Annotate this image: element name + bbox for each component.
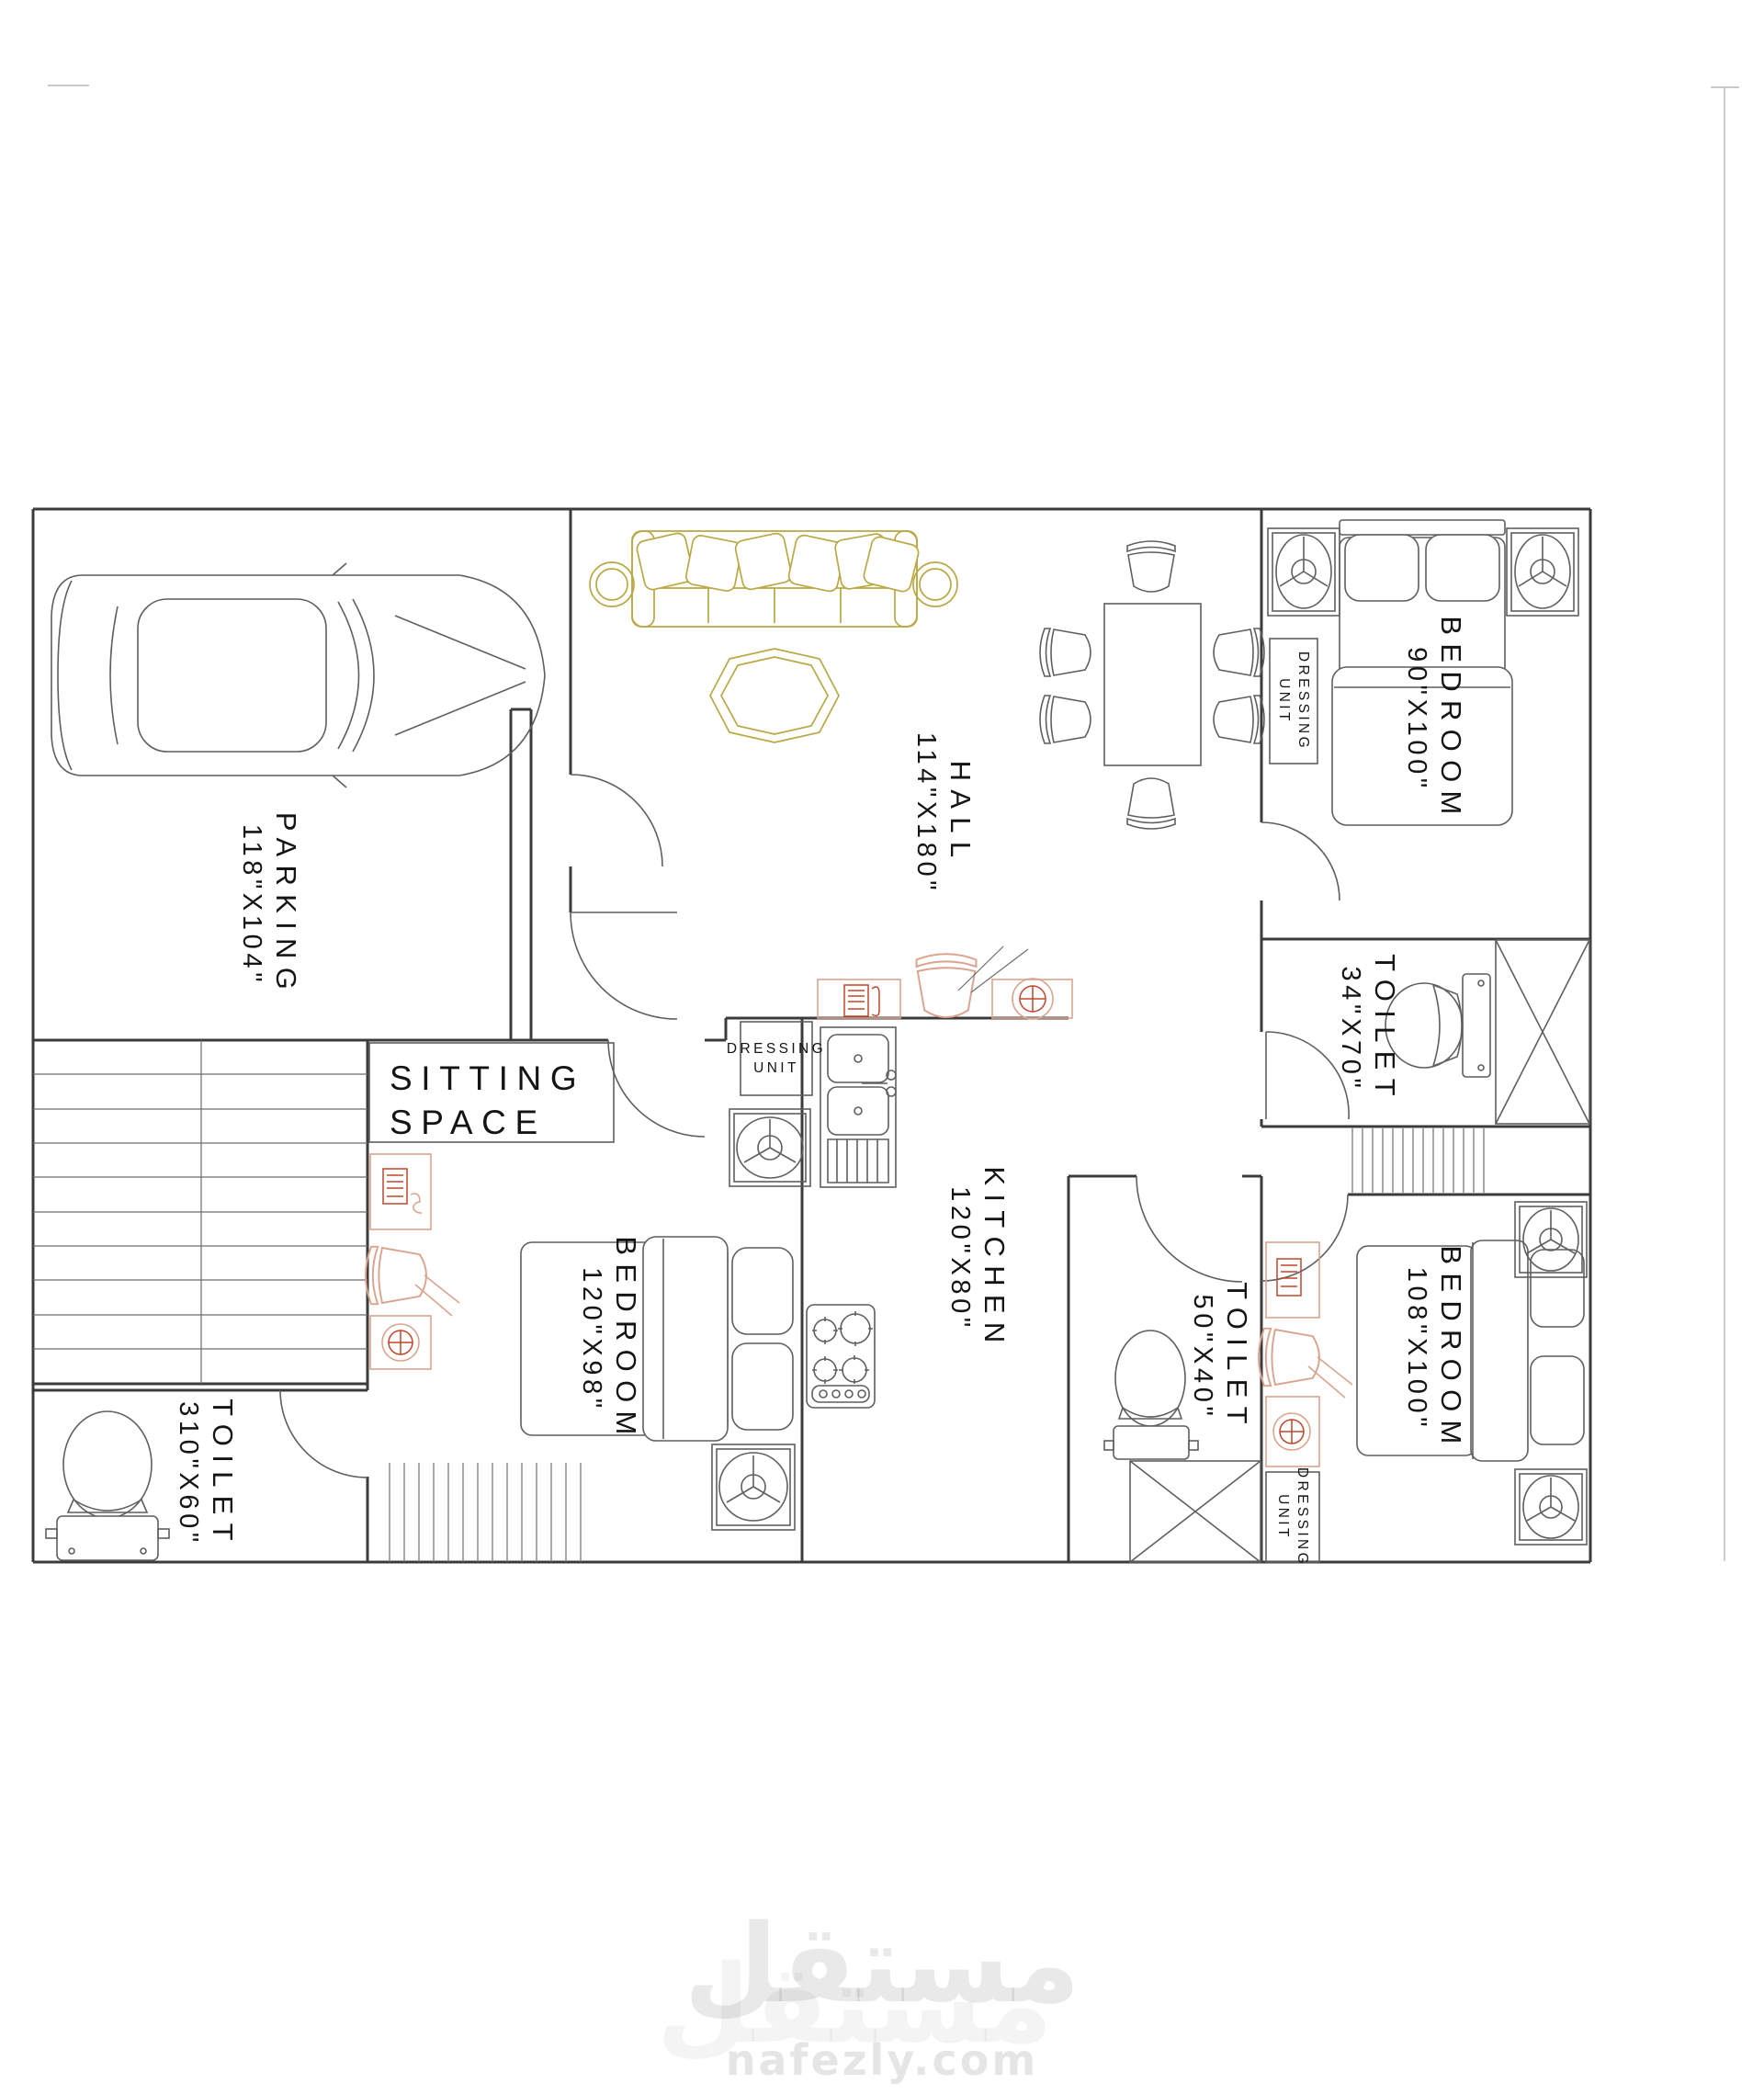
- room-label-bedroom120: BEDROOM 120"X98": [575, 1236, 643, 1443]
- coffee-table: [710, 649, 839, 742]
- entry-door-arc: [571, 775, 662, 866]
- room-label-toilet34: TOILET 34"X70": [1334, 954, 1402, 1104]
- sitting-desk-set: [366, 1154, 459, 1369]
- car-top-view: [51, 563, 545, 787]
- sofa-side-table-right: [913, 562, 957, 606]
- ceiling-fan: [712, 1444, 795, 1530]
- ceiling-fan: [1507, 528, 1578, 616]
- bed-bedroom108: [1357, 1240, 1584, 1461]
- room-label-bedroom90: BEDROOM 90"X100": [1400, 616, 1468, 822]
- dining-set: [1040, 541, 1264, 829]
- room-label-toilet310: TOILET 310"X60": [172, 1399, 240, 1549]
- room-label-parking: PARKING 118"X104": [235, 812, 303, 998]
- watermark-site-url: nafezly.com: [684, 2035, 1080, 2085]
- hall-door-arc: [571, 912, 677, 1019]
- room-label-toilet50: TOILET 50"X40": [1186, 1282, 1254, 1433]
- ceiling-fan: [729, 1109, 810, 1186]
- watermark: مستقل nafezly.com: [684, 1918, 1080, 2085]
- shower-box-toilet50: [1130, 1461, 1261, 1562]
- floor-hatch-bottom: [390, 1463, 581, 1562]
- floor-plan-sheet: PARKING 118"X104" HALL 114"X180" BEDROOM…: [0, 0, 1764, 2095]
- bedroom108-dressing-set: [1259, 1242, 1352, 1466]
- room-label-kitchen: KITCHEN 120"X80": [944, 1166, 1012, 1351]
- staircase: [33, 1040, 367, 1384]
- kitchen-sink-unit: [820, 1027, 896, 1187]
- floor-hatch-corridor: [1352, 1128, 1484, 1193]
- hall-study-counter: [818, 946, 1072, 1019]
- bedroom120-door-arc: [608, 1040, 705, 1137]
- room-label-bedroom108: BEDROOM 108"X100": [1400, 1245, 1468, 1452]
- shower-box-toilet34: [1496, 940, 1589, 1124]
- kitchen-stove: [807, 1305, 875, 1408]
- sofa-side-table-left: [590, 562, 634, 606]
- bed-bedroom120: [521, 1237, 793, 1441]
- watermark-arabic-logo: مستقل: [684, 1918, 1080, 2010]
- room-label-sitting-space: SITTING SPACE: [390, 1057, 585, 1145]
- wc-toilet310: [46, 1411, 169, 1560]
- hall-basin-icon: [1012, 979, 1053, 1019]
- toilet310-door-arc: [280, 1390, 367, 1478]
- bedroom108-door-arc: [1261, 1195, 1348, 1281]
- toilet50-door-arc: [1136, 1176, 1242, 1282]
- wc-toilet50: [1104, 1331, 1198, 1459]
- ceiling-fan: [1268, 528, 1340, 616]
- bedroom90-door-arc: [1261, 822, 1340, 900]
- ceiling-fan: [1515, 1469, 1587, 1545]
- label-dressing-unit-bedroom108: DRESSING UNIT: [1273, 1467, 1312, 1567]
- sofa: [632, 531, 921, 627]
- room-label-hall: HALL 114"X180": [910, 732, 978, 894]
- floor-plan-canvas: [0, 0, 1764, 2095]
- label-dressing-unit-bedroom90: DRESSING UNIT: [1274, 651, 1313, 751]
- computer-icon: [844, 985, 879, 1016]
- label-dressing-unit-bedroom120: DRESSING UNIT: [727, 1039, 826, 1078]
